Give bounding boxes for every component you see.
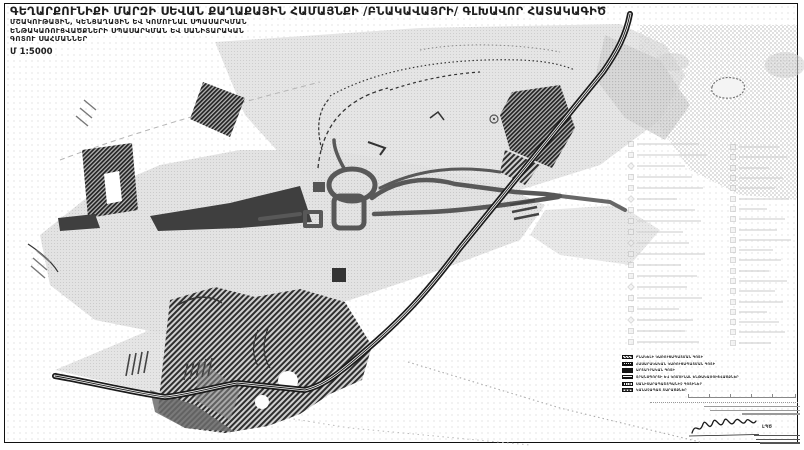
- faint-legend-swatch-icon: [730, 299, 736, 305]
- faint-legend-text-line: [637, 275, 697, 277]
- faint-legend-swatch-icon: [730, 154, 736, 160]
- faint-legend-row: [730, 235, 791, 245]
- faint-legend-swatch-icon: [730, 257, 736, 263]
- faint-legend-text-line: [637, 231, 683, 233]
- faint-legend-text-line: [637, 319, 693, 321]
- legend-item: ՏՐԱՆՍՊՈՐՏԻ ԵՎ ԿՈՄՈՒՆԱԼ ԵՆԹԱԿԱՌՈՒՑՎԱԾՔՆԵՐ: [622, 374, 739, 381]
- graphic-scale-bar: [688, 393, 796, 400]
- faint-legend-swatch-icon: [628, 218, 634, 224]
- faint-legend-row: [628, 281, 707, 292]
- faint-legend-swatch-icon: [627, 162, 635, 170]
- faint-legend-text-line: [739, 331, 785, 333]
- faint-legend-swatch-icon: [628, 141, 634, 147]
- faint-legend-row: [628, 303, 707, 314]
- stamp-divider-rule: [650, 402, 798, 403]
- faint-legend-row: [730, 183, 791, 193]
- faint-legend-text-line: [739, 167, 769, 169]
- faint-legend-swatch-icon: [730, 216, 736, 222]
- faint-legend-text-line: [739, 187, 775, 189]
- faint-legend-text-line: [637, 308, 679, 310]
- stamp-fine-print-lower: [752, 435, 800, 446]
- faint-legend-row: [628, 237, 707, 248]
- faint-legend-text-line: [637, 341, 699, 343]
- title-subline-2: ԵՆԹԱԿԱՌՈՒՑՎԱԾՔՆԵՐԻ ՍՊԱՍԱՐԿՄԱՆ ԵՎ ՍԱՆԻՏԱՐ…: [10, 27, 610, 36]
- legend-swatch-icon: [622, 362, 633, 366]
- faint-legend-row: [628, 149, 707, 160]
- fine-print-line: [710, 410, 800, 411]
- legend-item: ԱՐՏԱԴՐԱԿԱՆ ԳՈՏԻ: [622, 367, 739, 374]
- faint-legend-swatch-icon: [627, 283, 635, 291]
- faint-legend-text-line: [739, 229, 777, 231]
- faint-legend-row: [730, 173, 791, 183]
- faint-legend-text-line: [739, 270, 769, 272]
- faint-legend-row: [730, 245, 791, 255]
- title-block: ԳԵՂԱՐՔՈՒՆԻՔԻ ՄԱՐԶԻ ՍԵՎԱՆ ՔԱՂԱՔԱՅԻՆ ՀԱՄԱՅ…: [10, 4, 610, 57]
- title-subline-1: ՄՇԱԿՈՒԹԱՅԻՆ, ԿԵՆՑԱՂԱՅԻՆ ԵՎ ԿՈՄՈՒՆԱԼ ՍՊԱՍ…: [10, 18, 610, 27]
- faint-legend-row: [730, 338, 791, 348]
- faint-legend-row: [628, 259, 707, 270]
- faint-legend-row: [628, 226, 707, 237]
- legend-item-label: ԱՐՏԱԴՐԱԿԱՆ ԳՈՏԻ: [636, 368, 675, 372]
- faint-legend-swatch-icon: [730, 247, 736, 253]
- faint-legend-text-line: [739, 342, 771, 344]
- faint-legend-row: [628, 314, 707, 325]
- faint-legend-swatch-icon: [628, 229, 634, 235]
- faint-legend-swatch-icon: [730, 319, 736, 325]
- faint-legend-row: [730, 266, 791, 276]
- fine-print-line: [760, 442, 800, 443]
- faint-legend-text-line: [739, 156, 787, 158]
- faint-legend-swatch-icon: [628, 207, 634, 213]
- faint-legend-row: [628, 171, 707, 182]
- faint-legend-swatch-icon: [627, 195, 635, 203]
- faint-legend-row: [730, 327, 791, 337]
- faint-legend-swatch-icon: [730, 340, 736, 346]
- fine-print-line: [754, 435, 800, 436]
- legend-swatch-icon: [622, 375, 633, 379]
- legend-swatch-icon: [622, 382, 633, 386]
- faint-legend-text-line: [739, 177, 783, 179]
- faint-legend-row: [730, 255, 791, 265]
- faint-legend-row: [730, 214, 791, 224]
- faint-legend-text-line: [739, 146, 779, 148]
- map-scale-label: Մ 1:5000: [10, 47, 610, 57]
- faint-legend-swatch-icon: [730, 227, 736, 233]
- faint-legend-row: [730, 204, 791, 214]
- faint-legend-row: [730, 193, 791, 203]
- faint-legend-swatch-icon: [730, 237, 736, 243]
- faint-legend-text-line: [637, 176, 692, 178]
- faint-legend-swatch-icon: [627, 316, 635, 324]
- legend-item-label: ՀԱՍԱՐԱԿԱԿԱՆ ԿԱՌՈՒՑԱՊԱՏՄԱՆ ԳՈՏԻ: [636, 362, 715, 366]
- faint-legend-text-line: [739, 290, 775, 292]
- faint-legend-swatch-icon: [628, 339, 634, 345]
- faint-legend-swatch-icon: [628, 251, 634, 257]
- faint-legend-text-line: [637, 286, 687, 288]
- faint-legend-swatch-icon: [730, 278, 736, 284]
- faint-legend-text-line: [637, 198, 677, 200]
- faint-legend-text-line: [637, 297, 702, 299]
- faint-legend-column-left: [628, 138, 707, 347]
- faint-legend-row: [730, 276, 791, 286]
- faint-legend-swatch-icon: [730, 329, 736, 335]
- faint-legend-swatch-icon: [628, 295, 634, 301]
- faint-legend-swatch-icon: [730, 165, 736, 171]
- faint-legend-text-line: [637, 264, 681, 266]
- faint-legend-swatch-icon: [730, 309, 736, 315]
- faint-legend-swatch-icon: [628, 273, 634, 279]
- faint-legend-swatch-icon: [730, 206, 736, 212]
- legend-swatch-icon: [622, 355, 633, 359]
- faint-legend-swatch-icon: [730, 268, 736, 274]
- faint-legend-text-line: [637, 253, 705, 255]
- faint-legend-swatch-icon: [628, 262, 634, 268]
- faint-legend-row: [628, 248, 707, 259]
- fine-print-line: [756, 439, 800, 440]
- faint-legend-text-line: [637, 330, 685, 332]
- faint-legend-text-line: [739, 249, 773, 251]
- page-title: ԳԵՂԱՐՔՈՒՆԻՔԻ ՄԱՐԶԻ ՍԵՎԱՆ ՔԱՂԱՔԱՅԻՆ ՀԱՄԱՅ…: [10, 4, 610, 18]
- faint-legend-text-line: [739, 239, 791, 241]
- faint-legend-swatch-icon: [628, 328, 634, 334]
- legend-item: ՍԱՆԻՏԱՐԱՊԱՇՏՊԱՆԻՉ ԳՈՏԻՆԵՐ: [622, 380, 739, 387]
- faint-legend-text-line: [739, 198, 789, 200]
- legend-item-label: ԿԱՆԱՉԱՊԱՏ ՏԱՐԱԾՔՆԵՐ: [636, 388, 687, 392]
- faint-legend-row: [730, 296, 791, 306]
- faint-legend-text-line: [637, 187, 703, 189]
- faint-legend-swatch-icon: [628, 152, 634, 158]
- faint-legend-swatch-icon: [730, 175, 736, 181]
- faint-legend-text-line: [739, 280, 787, 282]
- title-subline-3: ԳՈՏՈՒ ՍԱՀՄԱՆՆԵՐ: [10, 35, 610, 44]
- faint-legend-swatch-icon: [627, 239, 635, 247]
- faint-legend-swatch-icon: [628, 185, 634, 191]
- faint-legend-row: [628, 193, 707, 204]
- faint-legend-text-line: [739, 321, 779, 323]
- faint-legend-row: [628, 182, 707, 193]
- faint-legend-row: [628, 215, 707, 226]
- faint-legend-text-line: [637, 209, 695, 211]
- signature-initials-label: ԼՊԾ: [762, 425, 772, 430]
- faint-legend-row: [730, 224, 791, 234]
- faint-legend-text-line: [637, 242, 689, 244]
- legend-swatch-icon: [622, 388, 633, 392]
- legend-swatch-icon: [622, 368, 633, 372]
- faint-legend-swatch-icon: [628, 306, 634, 312]
- faint-legend-row: [628, 292, 707, 303]
- faint-legend-row: [730, 163, 791, 173]
- faint-legend-swatch-icon: [730, 196, 736, 202]
- faint-legend-row: [628, 270, 707, 281]
- faint-legend-text-line: [637, 154, 707, 156]
- legend: ԲՆԱԿԵԼԻ ԿԱՌՈՒՑԱՊԱՏՄԱՆ ԳՈՏԻՀԱՍԱՐԱԿԱԿԱՆ ԿԱ…: [622, 354, 739, 394]
- faint-legend-swatch-icon: [730, 144, 736, 150]
- faint-legend-text-line: [739, 311, 767, 313]
- faint-legend-text-line: [637, 220, 701, 222]
- faint-legend-text-line: [739, 301, 783, 303]
- faint-legend-text-line: [739, 208, 767, 210]
- faint-legend-swatch-icon: [628, 174, 634, 180]
- faint-legend-row: [628, 138, 707, 149]
- faint-legend-row: [628, 160, 707, 171]
- legend-item-label: ՏՐԱՆՍՊՈՐՏԻ ԵՎ ԿՈՄՈՒՆԱԼ ԵՆԹԱԿԱՌՈՒՑՎԱԾՔՆԵՐ: [636, 375, 739, 379]
- faint-legend-row: [628, 325, 707, 336]
- faint-legend-row: [628, 204, 707, 215]
- faint-legend-text-line: [637, 143, 699, 145]
- faint-legend-text-line: [739, 218, 785, 220]
- faint-legend-text-line: [637, 165, 685, 167]
- faint-legend-row: [730, 286, 791, 296]
- legend-item: ՀԱՍԱՐԱԿԱԿԱՆ ԿԱՌՈՒՑԱՊԱՏՄԱՆ ԳՈՏԻ: [622, 361, 739, 368]
- faint-legend-row: [730, 307, 791, 317]
- fine-print-line: [704, 406, 800, 407]
- faint-legend-column-right: [730, 142, 791, 348]
- faint-legend-row: [730, 317, 791, 327]
- faint-legend-swatch-icon: [730, 185, 736, 191]
- faint-legend-row: [628, 336, 707, 347]
- legend-item: ԲՆԱԿԵԼԻ ԿԱՌՈՒՑԱՊԱՏՄԱՆ ԳՈՏԻ: [622, 354, 739, 361]
- faint-legend-row: [730, 152, 791, 162]
- drawing-sheet: { "title": { "main": "ԳԵՂԱՐՔՈՒՆԻՔԻ ՄԱՐԶԻ…: [0, 0, 804, 450]
- legend-item-label: ՍԱՆԻՏԱՐԱՊԱՇՏՊԱՆԻՉ ԳՈՏԻՆԵՐ: [636, 382, 702, 386]
- faint-legend-row: [730, 142, 791, 152]
- faint-legend-text-line: [739, 259, 781, 261]
- faint-legend-swatch-icon: [730, 288, 736, 294]
- legend-item-label: ԲՆԱԿԵԼԻ ԿԱՌՈՒՑԱՊԱՏՄԱՆ ԳՈՏԻ: [636, 355, 703, 359]
